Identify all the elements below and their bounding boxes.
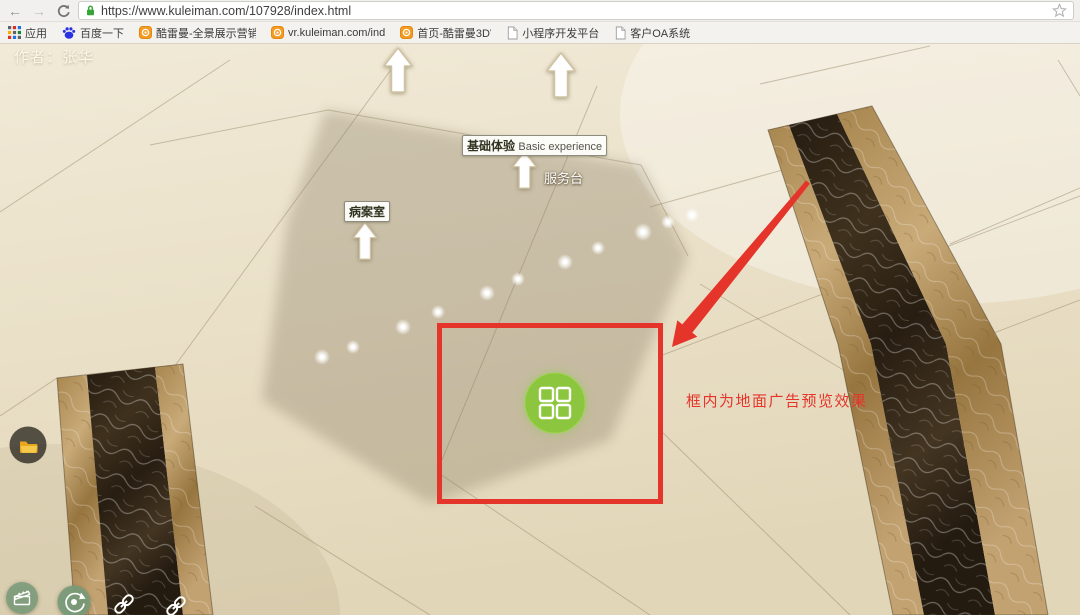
nav-arrow-hotspot-service-desk[interactable]	[511, 151, 538, 189]
page-icon	[506, 26, 518, 40]
bookmark-label: 小程序开发平台	[522, 25, 599, 41]
bookmark-kuleiman-marketing[interactable]: 酷雷曼-全景展示营销	[139, 25, 256, 41]
panorama-viewport[interactable]: 作者：张华 基础体验 Basic experience 服务台 病案室 框内为地…	[0, 44, 1080, 615]
bookmark-baidu[interactable]: 百度一下	[62, 25, 124, 41]
bookmark-customer-oa[interactable]: 客户OA系统	[614, 25, 690, 41]
hotspot-label-zh: 基础体验	[467, 139, 515, 153]
bookmark-label: 百度一下	[80, 25, 124, 41]
scene-folder-button[interactable]	[9, 426, 47, 464]
auto-rotate-button[interactable]	[56, 584, 92, 615]
link-icon	[114, 594, 135, 615]
bookmark-label: 客户OA系统	[630, 25, 690, 41]
bookmark-kuleiman-home[interactable]: 首页-酷雷曼3DVR全	[400, 25, 491, 41]
copy-link-button[interactable]	[163, 593, 189, 615]
bookmark-label: 应用	[25, 25, 47, 41]
annotation-note: 框内为地面广告预览效果	[686, 390, 868, 411]
page-icon	[614, 26, 626, 40]
forward-icon[interactable]: →	[30, 2, 48, 20]
bookmark-vr-kuleiman[interactable]: vr.kuleiman.com/ind	[271, 26, 385, 39]
nav-arrow-hotspot[interactable]	[383, 45, 413, 95]
hotspot-label-basic-experience: 基础体验 Basic experience	[462, 135, 607, 156]
kuleiman-logo-icon	[271, 26, 284, 39]
bookmarks-bar: 应用 百度一下 酷雷曼-全景展示营销 vr.kuleiman.com/ind	[0, 22, 1080, 44]
back-icon[interactable]: ←	[6, 2, 24, 20]
baidu-paw-icon	[62, 26, 76, 40]
nav-arrow-hotspot-records-room[interactable]	[351, 222, 379, 260]
hotspot-label-service-desk: 服务台	[544, 168, 583, 187]
bookmark-apps[interactable]: 应用	[8, 25, 47, 41]
apps-grid-icon	[8, 26, 21, 39]
hotspot-label-en: Basic experience	[518, 141, 602, 153]
https-lock-icon	[85, 4, 96, 17]
hotspot-label-zh: 病案室	[349, 205, 385, 219]
url-text[interactable]: https://www.kuleiman.com/107928/index.ht…	[101, 4, 1047, 18]
bookmark-label: 首页-酷雷曼3DVR全	[417, 25, 491, 41]
address-bar[interactable]: https://www.kuleiman.com/107928/index.ht…	[78, 1, 1074, 20]
nav-arrow-hotspot[interactable]	[546, 49, 576, 101]
bookmark-star-icon[interactable]	[1052, 3, 1067, 18]
link-icon	[166, 596, 187, 615]
kuleiman-logo-icon	[139, 26, 152, 39]
share-link-button[interactable]	[111, 591, 137, 615]
bookmark-miniprogram-platform[interactable]: 小程序开发平台	[506, 25, 599, 41]
bookmark-label: 酷雷曼-全景展示营销	[156, 25, 256, 41]
author-watermark: 作者：张华	[14, 46, 94, 67]
browser-toolbar: ← → https://www.kuleiman.com/107928/inde…	[0, 0, 1080, 22]
kuleiman-logo-icon	[400, 26, 413, 39]
bookmark-label: vr.kuleiman.com/ind	[288, 27, 385, 39]
scenes-list-button[interactable]	[5, 581, 39, 615]
annotation-rectangle	[437, 323, 663, 504]
reload-icon[interactable]	[54, 2, 72, 20]
hotspot-label-records-room: 病案室	[344, 201, 390, 222]
